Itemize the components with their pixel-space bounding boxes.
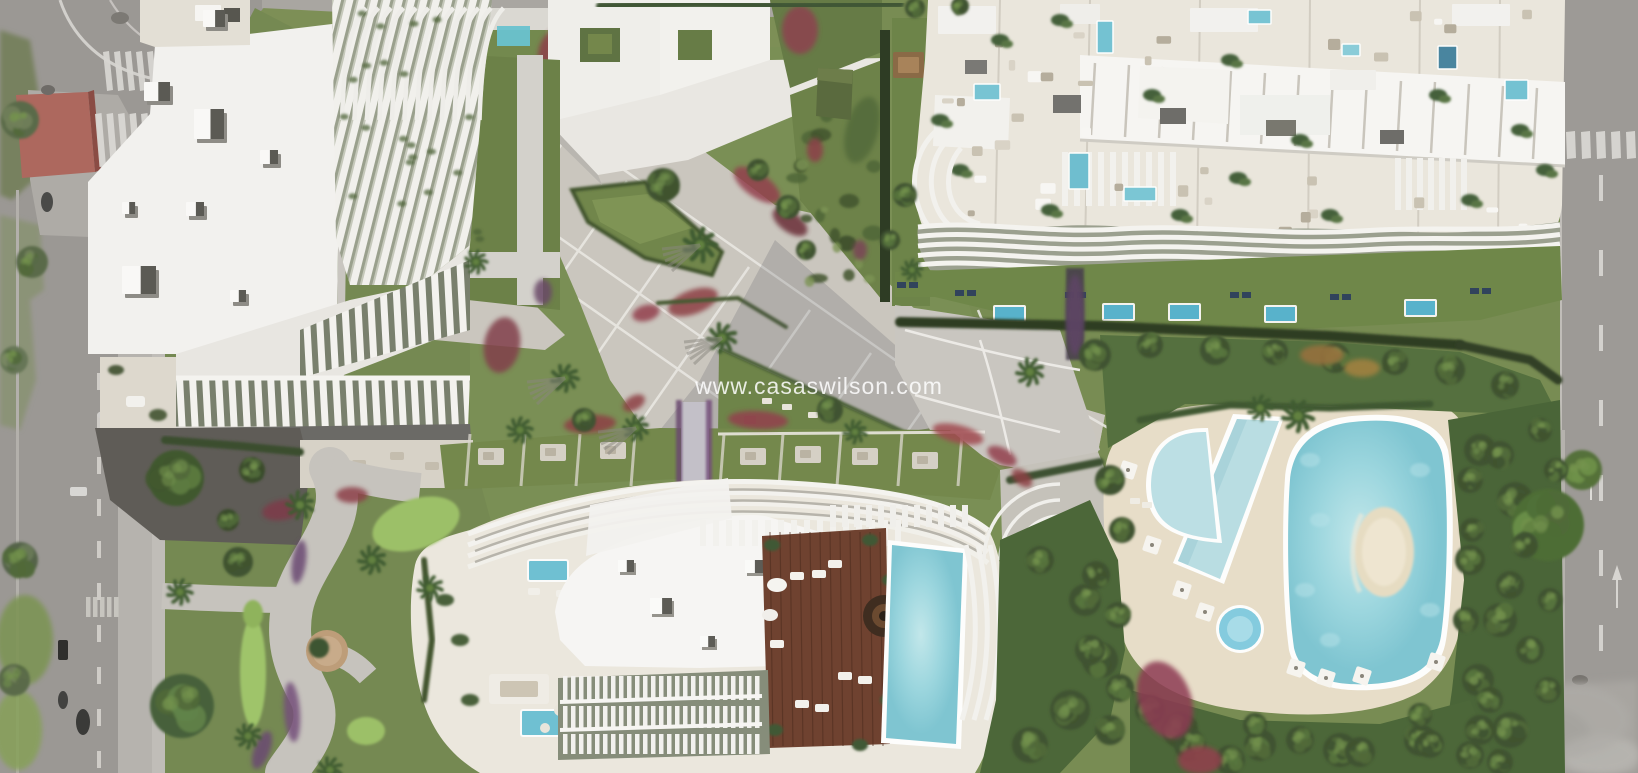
- svg-text:www.casaswilson.com: www.casaswilson.com: [694, 373, 943, 399]
